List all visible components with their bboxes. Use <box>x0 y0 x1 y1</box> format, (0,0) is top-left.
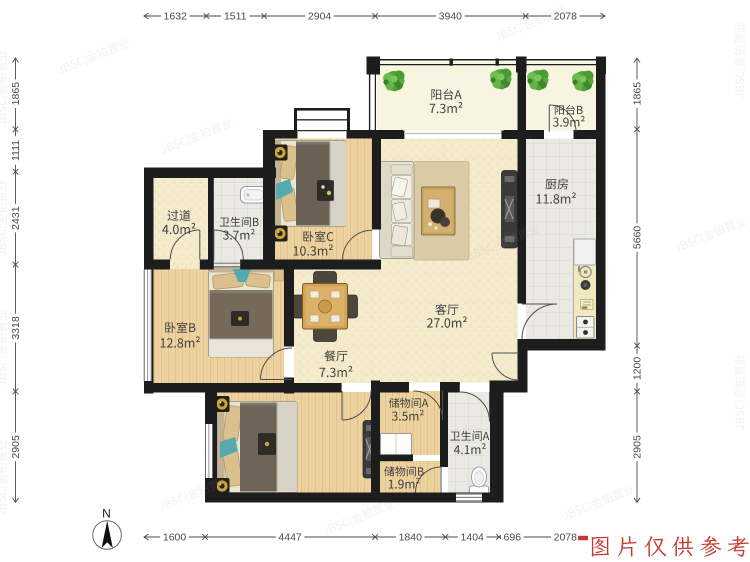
svg-text:2078: 2078 <box>554 11 578 23</box>
svg-text:1200: 1200 <box>632 357 644 381</box>
svg-text:1111: 1111 <box>10 140 22 161</box>
svg-text:1511: 1511 <box>224 11 247 23</box>
svg-text:2905: 2905 <box>632 435 644 459</box>
svg-text:1632: 1632 <box>164 11 188 23</box>
svg-text:2904: 2904 <box>308 11 332 23</box>
svg-text:2905: 2905 <box>10 435 22 459</box>
svg-text:696: 696 <box>504 532 522 544</box>
svg-text:1600: 1600 <box>163 532 187 544</box>
svg-text:4447: 4447 <box>278 532 302 544</box>
svg-text:2078: 2078 <box>554 532 578 544</box>
svg-text:1840: 1840 <box>399 532 423 544</box>
svg-text:3318: 3318 <box>10 316 22 340</box>
svg-text:1865: 1865 <box>632 82 644 106</box>
svg-text:N: N <box>102 507 111 521</box>
svg-text:2431: 2431 <box>10 206 22 230</box>
svg-text:5660: 5660 <box>632 226 644 250</box>
svg-text:3940: 3940 <box>439 11 463 23</box>
svg-text:1404: 1404 <box>461 532 485 544</box>
svg-text:1865: 1865 <box>10 82 22 106</box>
